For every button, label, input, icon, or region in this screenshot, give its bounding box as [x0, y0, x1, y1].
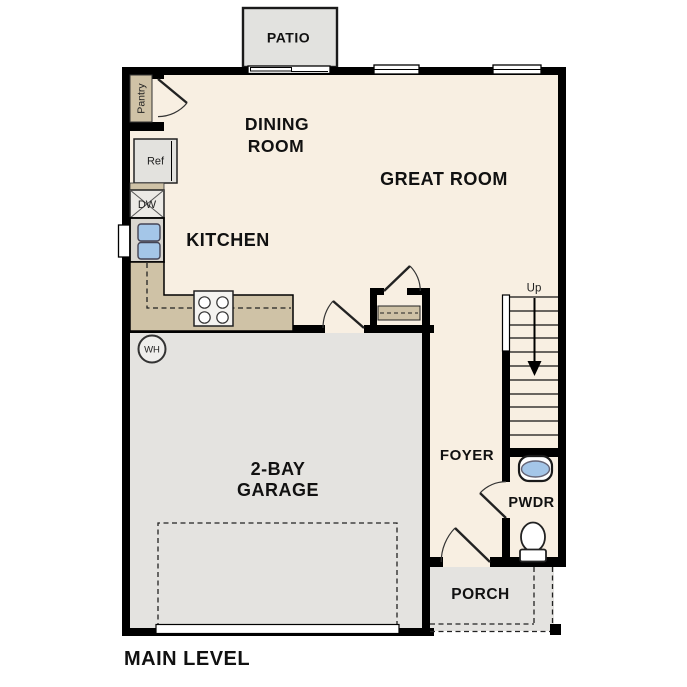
- plan-title: MAIN LEVEL: [124, 648, 250, 670]
- wall-pwdr-upper: [502, 456, 510, 482]
- closet-shelf: [378, 306, 420, 320]
- garage-entry-opening: [325, 325, 364, 333]
- pantry-label: Pantry: [136, 83, 148, 114]
- window-top-2: [493, 65, 541, 74]
- porch-post: [550, 624, 561, 635]
- dishwasher-label: DW: [138, 199, 157, 211]
- dining-room-label-line2: ROOM: [248, 136, 304, 156]
- powder-room-label: PWDR: [508, 495, 554, 511]
- dining-room-label-line1: DINING: [245, 114, 309, 134]
- garage-door: [156, 625, 399, 634]
- window-top-1: [374, 65, 419, 74]
- wall-closet-stub-left: [370, 288, 384, 295]
- wall-pwdr-lower: [502, 518, 510, 567]
- wall-right: [558, 67, 566, 567]
- foyer-label: FOYER: [440, 447, 494, 464]
- great-room-label: GREAT ROOM: [380, 169, 508, 189]
- stairs-up-label: Up: [527, 283, 542, 295]
- refrigerator-label: Ref: [147, 156, 165, 168]
- wall-stairs-left: [502, 351, 510, 457]
- garage-label-line1: 2-BAY: [251, 459, 306, 479]
- stove: [194, 291, 233, 326]
- water-heater-label: WH: [144, 345, 160, 356]
- wall-pantry-bottom: [122, 122, 164, 131]
- toilet: [520, 523, 546, 562]
- floor-plan-page: PATIO DINING ROOM GREAT ROOM KITCHEN Pan…: [0, 0, 687, 687]
- wall-left: [122, 67, 130, 636]
- wall-pantry-stub: [152, 67, 164, 79]
- wall-closet-stub-right: [407, 288, 430, 295]
- front-door-opening: [443, 557, 490, 567]
- pwdr-sink: [519, 456, 552, 481]
- kitchen-label: KITCHEN: [186, 230, 270, 250]
- wall-garage-foyer: [422, 288, 430, 636]
- stair-railing: [503, 295, 510, 351]
- counter-strip: [130, 183, 164, 190]
- patio-sliding-door: [248, 66, 330, 74]
- porch-label: PORCH: [451, 586, 509, 603]
- garage-label-line2: GARAGE: [237, 480, 319, 500]
- patio-label: PATIO: [267, 30, 310, 46]
- kitchen-sink: [130, 218, 164, 262]
- floor-plan-canvas: PATIO DINING ROOM GREAT ROOM KITCHEN Pan…: [0, 0, 687, 687]
